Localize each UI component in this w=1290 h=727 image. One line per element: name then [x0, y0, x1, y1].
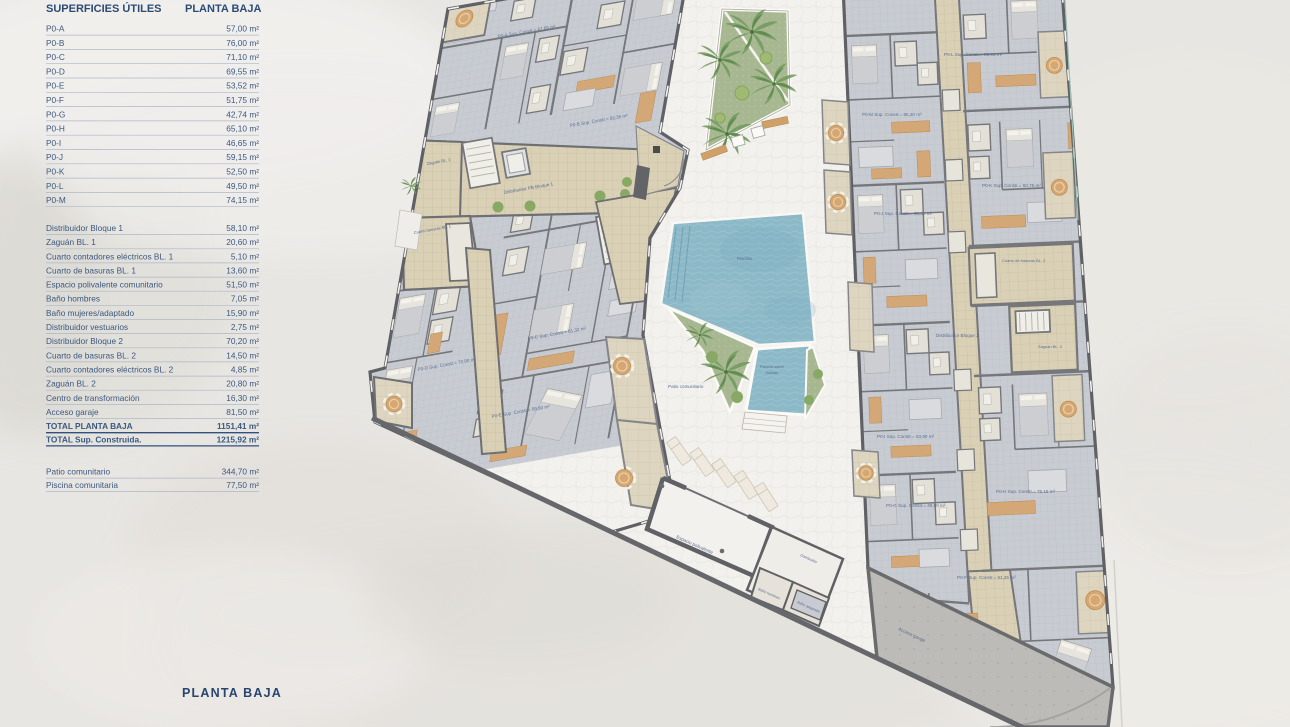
svg-text:65,10 m²: 65,10 m² [226, 124, 259, 134]
svg-text:Cuarto de basuras BL. 2: Cuarto de basuras BL. 2 [46, 350, 136, 360]
svg-text:344,70 m²: 344,70 m² [222, 467, 260, 477]
svg-text:PLANTA BAJA: PLANTA BAJA [185, 3, 261, 15]
svg-text:52,50 m²: 52,50 m² [226, 167, 259, 177]
svg-text:77,50 m²: 77,50 m² [226, 480, 259, 490]
svg-text:81,50 m²: 81,50 m² [226, 407, 259, 417]
svg-text:Patio comunitario: Patio comunitario [46, 467, 110, 477]
svg-text:Cuarto de basuras BL. 2: Cuarto de basuras BL. 2 [1002, 258, 1046, 263]
svg-text:P0-K Sup. Constr.= 50,75 m²: P0-K Sup. Constr.= 50,75 m² [982, 183, 1041, 188]
svg-text:15,90 m²: 15,90 m² [226, 308, 259, 318]
svg-text:69,55 m²: 69,55 m² [226, 66, 259, 76]
svg-text:51,50 m²: 51,50 m² [226, 280, 259, 290]
svg-text:Distribuidor Bloque 2: Distribuidor Bloque 2 [936, 333, 979, 338]
svg-text:7,05 m²: 7,05 m² [231, 294, 259, 304]
svg-text:P0-E: P0-E [46, 81, 65, 91]
svg-text:P0-M: P0-M [46, 195, 66, 205]
svg-text:49,50 m²: 49,50 m² [226, 181, 259, 191]
svg-text:P0-F Sup. Constr.= 61,25 m²: P0-F Sup. Constr.= 61,25 m² [957, 575, 1016, 580]
svg-text:P0-M Sup. Constr.= 85,20 m²: P0-M Sup. Constr.= 85,20 m² [862, 112, 922, 117]
svg-text:TOTAL PLANTA BAJA: TOTAL PLANTA BAJA [46, 421, 133, 431]
svg-text:Cuarto contadores eléctricos B: Cuarto contadores eléctricos BL. 2 [46, 365, 174, 375]
svg-text:P0-G: P0-G [46, 109, 65, 119]
svg-text:57,00 m²: 57,00 m² [226, 24, 259, 34]
svg-text:Zaguán BL. 1: Zaguán BL. 1 [46, 237, 96, 247]
svg-text:2,75 m²: 2,75 m² [231, 322, 259, 332]
svg-text:P0-D: P0-D [46, 66, 65, 76]
svg-text:P0-J Sup. Constr.= 68,00 m²: P0-J Sup. Constr.= 68,00 m² [874, 211, 933, 216]
svg-text:P0-I: P0-I [46, 138, 61, 148]
svg-text:Piscina sobre: Piscina sobre [760, 364, 785, 369]
svg-text:20,80 m²: 20,80 m² [226, 379, 259, 389]
svg-text:SUPERFICIES ÚTILES: SUPERFICIES ÚTILES [46, 2, 162, 15]
svg-text:P0-A: P0-A [46, 24, 65, 34]
svg-text:Baño hombres: Baño hombres [46, 294, 100, 304]
svg-text:Piscina comunitaria: Piscina comunitaria [46, 480, 118, 490]
svg-text:51,75 m²: 51,75 m² [226, 95, 259, 105]
svg-text:P0-G Sup. Constr.= 49,80 m²: P0-G Sup. Constr.= 49,80 m² [886, 503, 946, 508]
svg-text:46,65 m²: 46,65 m² [226, 138, 259, 148]
svg-text:Baño mujeres/adaptado: Baño mujeres/adaptado [46, 308, 134, 318]
svg-text:74,15 m²: 74,15 m² [226, 195, 259, 205]
svg-text:14,50 m²: 14,50 m² [226, 350, 259, 360]
svg-text:70,20 m²: 70,20 m² [226, 336, 259, 346]
svg-text:76,00 m²: 76,00 m² [226, 38, 259, 48]
svg-text:Cuarto contadores eléctricos B: Cuarto contadores eléctricos BL. 1 [46, 251, 174, 261]
svg-text:42,74 m²: 42,74 m² [226, 109, 259, 119]
svg-text:Distribuidor vestuarios: Distribuidor vestuarios [46, 322, 128, 332]
svg-text:1151,41 m²: 1151,41 m² [217, 421, 259, 431]
svg-text:P0-H: P0-H [46, 124, 65, 134]
svg-text:5,10 m²: 5,10 m² [231, 251, 259, 261]
svg-text:Centro de transformación: Centro de transformación [46, 393, 140, 403]
svg-text:58,10 m²: 58,10 m² [226, 223, 259, 233]
svg-text:20,60 m²: 20,60 m² [226, 237, 259, 247]
svg-text:53,52 m²: 53,52 m² [226, 81, 259, 91]
svg-text:Acceso garaje: Acceso garaje [46, 407, 99, 417]
svg-text:P0-L Sup. Constr.= 55,95 m²: P0-L Sup. Constr.= 55,95 m² [944, 52, 1003, 57]
svg-text:Piscina: Piscina [737, 256, 752, 261]
svg-text:P0-H Sup. Constr.= 75,15 m²: P0-H Sup. Constr.= 75,15 m² [996, 489, 1056, 494]
svg-text:P0-I Sup. Constr.= 53,90 m²: P0-I Sup. Constr.= 53,90 m² [877, 434, 935, 439]
svg-text:Distribuidor Bloque 1: Distribuidor Bloque 1 [46, 223, 123, 233]
svg-text:P0-B: P0-B [46, 38, 65, 48]
svg-text:Patio comunitario: Patio comunitario [668, 384, 704, 389]
svg-text:59,15 m²: 59,15 m² [226, 152, 259, 162]
svg-text:Zaguán BL. 2: Zaguán BL. 2 [46, 379, 96, 389]
svg-text:forjado: forjado [766, 370, 779, 375]
svg-text:13,60 m²: 13,60 m² [226, 265, 259, 275]
svg-text:Cuarto de basuras BL. 1: Cuarto de basuras BL. 1 [46, 265, 136, 275]
svg-text:Zaguán BL. 2: Zaguán BL. 2 [1038, 344, 1063, 349]
svg-text:Espacio polivalente comunitari: Espacio polivalente comunitario [46, 280, 163, 290]
svg-text:P0-F: P0-F [46, 95, 64, 105]
svg-text:TOTAL Sup. Construida.: TOTAL Sup. Construida. [46, 434, 141, 444]
svg-text:16,30 m²: 16,30 m² [226, 393, 259, 403]
svg-text:P0-J: P0-J [46, 152, 63, 162]
svg-text:Distribuidor Bloque 2: Distribuidor Bloque 2 [46, 336, 123, 346]
svg-text:P0-L: P0-L [46, 181, 64, 191]
svg-text:PLANTA BAJA: PLANTA BAJA [182, 686, 282, 700]
svg-text:4,85 m²: 4,85 m² [231, 365, 259, 375]
svg-text:P0-K: P0-K [46, 167, 65, 177]
svg-text:71,10 m²: 71,10 m² [226, 52, 259, 62]
svg-text:1215,92 m²: 1215,92 m² [217, 434, 260, 444]
svg-text:P0-C: P0-C [46, 52, 65, 62]
